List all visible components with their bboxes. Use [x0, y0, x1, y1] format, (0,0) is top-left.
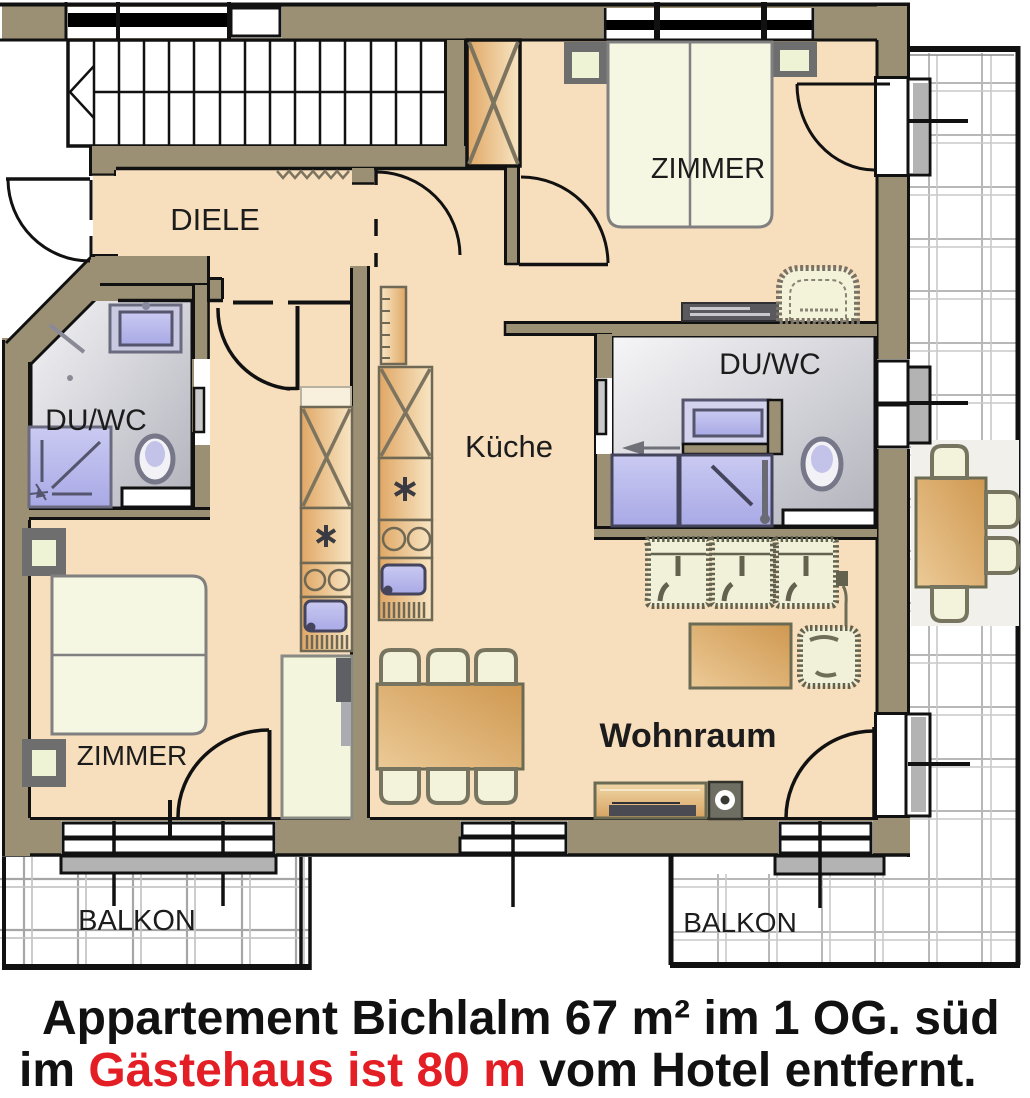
svg-text:ZIMMER: ZIMMER [651, 153, 765, 185]
svg-text:Appartement Bichlalm 67 m² im: Appartement Bichlalm 67 m² im 1 OG. süd [42, 992, 1000, 1045]
svg-text:ZIMMER: ZIMMER [77, 740, 187, 771]
svg-text:BALKON: BALKON [683, 907, 797, 938]
svg-text:Wohnraum: Wohnraum [600, 717, 777, 755]
svg-text:DU/WC: DU/WC [719, 348, 821, 381]
svg-text:im Gästehaus ist 80 m vom Hote: im Gästehaus ist 80 m vom Hotel entfernt… [19, 1044, 977, 1097]
svg-text:BALKON: BALKON [78, 905, 196, 937]
svg-text:DU/WC: DU/WC [45, 404, 147, 437]
svg-text:Küche: Küche [465, 429, 553, 464]
svg-text:DIELE: DIELE [170, 202, 260, 237]
